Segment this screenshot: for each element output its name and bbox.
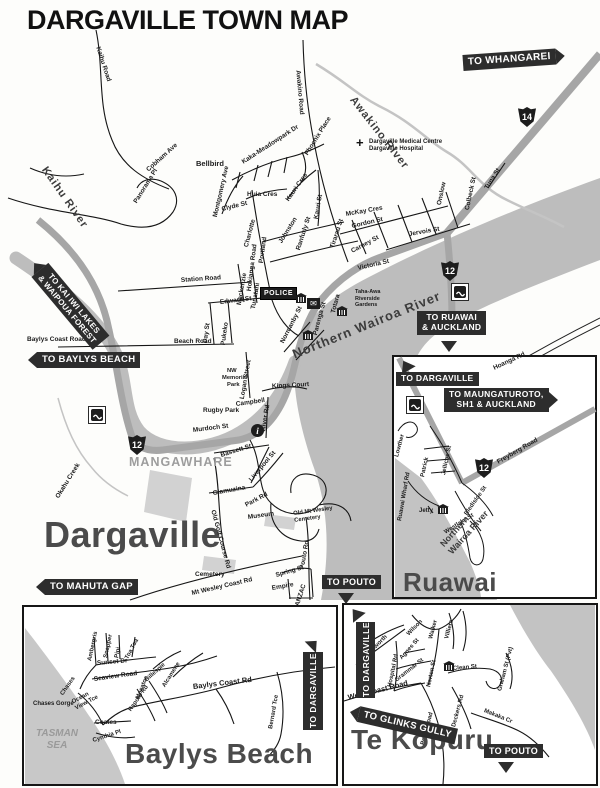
arrow-down-icon	[338, 593, 354, 604]
mail-glyph: ✉	[310, 300, 317, 308]
street-beach-road: Beach Road	[174, 339, 212, 346]
to-dargaville-text-ruawai: TO DARGAVILLE	[401, 374, 474, 384]
museum-building-icon-ruawai	[437, 501, 449, 519]
post-office-icon: ✉	[307, 298, 320, 309]
hospital-label: Dargaville Medical Centre Dargaville Hos…	[369, 139, 442, 153]
surf-wave-icon-main	[451, 283, 469, 301]
museum-building-icon-3	[302, 327, 314, 345]
arrow-down-icon	[498, 762, 514, 773]
street-bellbird: Bellbird	[196, 160, 224, 168]
to-dargaville-sign-tekopuru: TO DARGAVILLE	[356, 622, 375, 698]
arrow-left-icon	[28, 352, 37, 368]
street-baylys-coast-road: Baylys Coast Road	[27, 337, 86, 344]
arrow-right-icon	[555, 48, 565, 65]
taha-line-1: Taha-Awa	[355, 289, 380, 296]
tasman-line-1: TASMAN	[36, 728, 78, 740]
te-kopuru-inset-panel	[342, 603, 598, 786]
to-pouto-sign-main: TO POUTO	[322, 575, 381, 589]
info-icon: i	[251, 424, 264, 437]
hospital-line-1: Dargaville Medical Centre	[369, 139, 442, 146]
to-mahuta-gap-sign: TO MAHUTA GAP	[36, 579, 138, 595]
page-title: DARGAVILLE TOWN MAP	[27, 5, 348, 36]
arrow-down-icon	[441, 341, 457, 352]
to-dargaville-text-tekopuru: TO DARGAVILLE	[361, 622, 371, 697]
tasman-sea-label: TASMAN SEA	[36, 728, 78, 752]
info-glyph: i	[256, 426, 259, 436]
rugby-park-label: Rugby Park	[203, 408, 239, 415]
taha-awa-gardens-label: Taha-Awa Riverside Gardens	[355, 289, 380, 309]
museum-building-icon-1	[295, 290, 307, 308]
ruawai-title: Ruawai	[403, 567, 497, 598]
nw-line-3: Park	[222, 382, 247, 389]
memorial-park-label: NW Memorial Park	[222, 368, 247, 389]
to-pouto-text-main: TO POUTO	[327, 577, 376, 587]
to-dargaville-sign-ruawai: TO DARGAVILLE	[396, 372, 479, 386]
ruawai-line-2: & AUCKLAND	[422, 323, 481, 333]
police-station-label: POLICE	[260, 287, 297, 300]
baylys-beach-title: Baylys Beach	[125, 738, 313, 770]
arrow-left-icon	[36, 579, 45, 595]
to-dargaville-sign-baylys: TO DARGAVILLE	[303, 652, 323, 730]
street-coates: Coates	[95, 720, 117, 727]
museum-building-icon-2	[336, 303, 348, 321]
cemetery-label: Cemetery	[195, 572, 225, 579]
hospital-cross-icon: +	[356, 136, 364, 149]
sh12-number-main: 12	[445, 266, 455, 276]
taha-line-2: Riverside	[355, 296, 380, 303]
street-jetty: Jetty	[419, 508, 433, 514]
arrow-right-icon	[549, 392, 558, 408]
to-dargaville-text-baylys: TO DARGAVILLE	[308, 653, 318, 728]
hospital-line-2: Dargaville Hospital	[369, 146, 442, 153]
to-mahuta-text: TO MAHUTA GAP	[50, 582, 133, 593]
dargaville-place-label: Dargaville	[44, 514, 221, 556]
mangawhare-place-label: MANGAWHARE	[129, 455, 233, 469]
to-ruawai-auckland-sign: TO RUAWAI & AUCKLAND	[417, 311, 486, 335]
maungaturoto-line-2: SH1 & AUCKLAND	[449, 400, 544, 410]
taha-line-3: Gardens	[355, 302, 380, 309]
to-pouto-text-tekopuru: TO POUTO	[489, 746, 538, 756]
sh14-number: 14	[522, 112, 532, 122]
street-huia-cres: Huia Cres	[247, 192, 277, 199]
to-pouto-sign-tekopuru: TO POUTO	[484, 744, 543, 758]
surf-wave-icon-ruawai	[406, 396, 424, 414]
to-maungaturoto-sign: TO MAUNGATUROTO, SH1 & AUCKLAND	[444, 388, 558, 412]
tasman-line-2: SEA	[36, 740, 78, 752]
to-baylys-beach-sign: TO BAYLYS BEACH	[28, 352, 140, 368]
sh12-number-ruawai: 12	[479, 463, 489, 473]
sh12-number-mangawhare: 12	[132, 440, 142, 450]
nw-line-2: Memorial	[222, 375, 247, 382]
surf-wave-icon-west	[88, 406, 106, 424]
chases-gorge-label: Chases Gorge	[33, 701, 74, 707]
nw-line-1: NW	[222, 368, 247, 375]
to-baylys-text: TO BAYLYS BEACH	[42, 355, 135, 366]
dargaville-town-map-page: DARGAVILLE TOWN MAP	[0, 0, 600, 788]
museum-building-icon-tekopuru	[443, 658, 455, 676]
